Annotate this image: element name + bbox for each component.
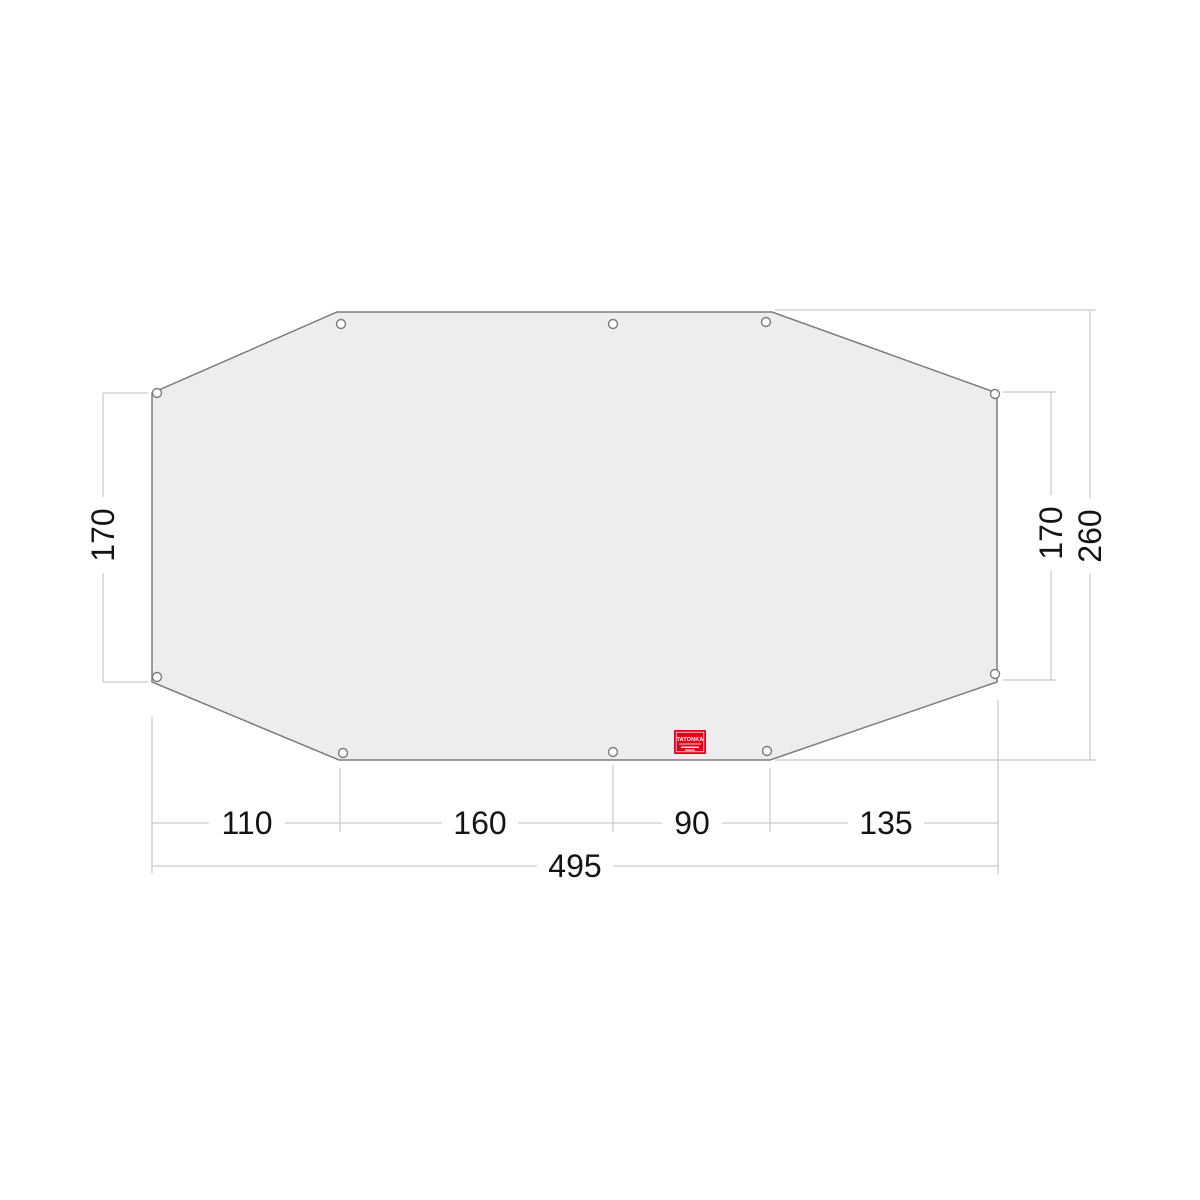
- grommet-right-bottom-icon: [991, 670, 1000, 679]
- dimension-overall-width-label: 495: [548, 848, 601, 884]
- grommet-bottom-left-icon: [339, 749, 348, 758]
- dimension-overall-height-label: 260: [1072, 509, 1108, 562]
- footprint-panel-shape: [152, 312, 997, 760]
- grommet-bottom-center-icon: [609, 748, 618, 757]
- brand-label-subtext-line-icon: [681, 747, 699, 749]
- dimension-right-height: 170: [1003, 392, 1069, 680]
- grommet-right-top-icon: [991, 390, 1000, 399]
- brand-label: TATONKA: [674, 730, 706, 754]
- dimension-segment-4-label: 135: [859, 805, 912, 841]
- footprint-panel-group: [152, 312, 997, 760]
- brand-logo-text: TATONKA: [677, 737, 704, 743]
- dimension-right-height-label: 170: [1033, 506, 1069, 559]
- dimension-segment-2-label: 160: [453, 805, 506, 841]
- grommet-bottom-right-icon: [763, 747, 772, 756]
- dimension-segment-1-label: 110: [221, 805, 272, 841]
- dimension-bottom-segments: 110 160 90 135: [152, 765, 998, 841]
- grommet-left-top-icon: [153, 389, 162, 398]
- diagram-canvas: 170 170 260 110 160 90 135 495: [0, 0, 1200, 1200]
- grommet-top-left-icon: [337, 320, 346, 329]
- footprint-diagram: 170 170 260 110 160 90 135 495: [0, 0, 1200, 1200]
- brand-label-subtext-line2-icon: [685, 750, 695, 751]
- grommet-top-center-icon: [609, 320, 618, 329]
- dimension-left-height-label: 170: [85, 508, 121, 561]
- grommet-left-bottom-icon: [153, 673, 162, 682]
- dimension-segment-3-label: 90: [674, 805, 710, 841]
- dimension-left-height: 170: [85, 393, 148, 682]
- grommet-top-right-icon: [762, 318, 771, 327]
